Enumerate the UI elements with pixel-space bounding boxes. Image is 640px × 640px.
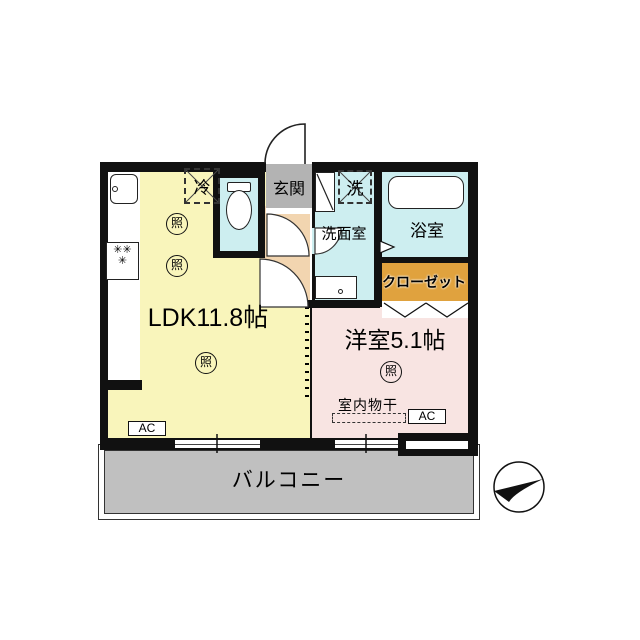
light-symbol: 照	[166, 255, 188, 277]
western-room-label: 洋室5.1帖	[345, 321, 446, 355]
shoe-cabinet-diagonal	[317, 174, 333, 210]
fridge-label: 冷	[194, 174, 211, 199]
bath-door-mark	[380, 241, 394, 253]
light-symbol-label: 照	[385, 364, 397, 378]
bifold-door-v-right	[426, 303, 468, 317]
toilet-door-swing-arc	[267, 214, 309, 256]
indoor-drying-label: 室内物干	[338, 395, 398, 415]
ldk-label: LDK11.8帖	[148, 298, 268, 334]
light-symbol: 照	[195, 352, 217, 374]
washroom-label: 洗面室	[321, 223, 366, 244]
ac-unit-western: AC	[408, 409, 446, 424]
entrance-door-swing-arc	[265, 124, 305, 164]
bifold-door-v-left	[384, 303, 426, 317]
ac-label: AC	[139, 421, 156, 435]
plan-line-overlay	[0, 0, 640, 640]
balcony-label: バルコニー	[232, 464, 347, 494]
bathroom-label: 浴室	[410, 217, 444, 242]
floor-plan-canvas: ✳✳ ✳ 照 照 照 照 AC AC	[0, 0, 640, 640]
light-symbol-label: 照	[171, 216, 183, 230]
washer-label: 洗	[347, 175, 364, 200]
ac-label: AC	[419, 409, 436, 423]
light-symbol-label: 照	[171, 258, 183, 272]
closet-label: クローゼット	[382, 272, 466, 292]
light-symbol-label: 照	[200, 355, 212, 369]
ac-unit-ldk: AC	[128, 421, 166, 436]
entrance-label: 玄関	[273, 175, 305, 199]
light-symbol: 照	[380, 361, 402, 383]
light-symbol: 照	[166, 213, 188, 235]
